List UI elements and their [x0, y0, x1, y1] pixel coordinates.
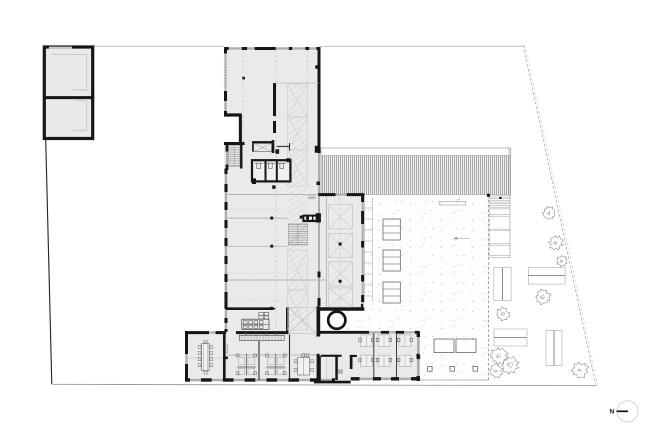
svg-text:N: N	[610, 409, 615, 416]
